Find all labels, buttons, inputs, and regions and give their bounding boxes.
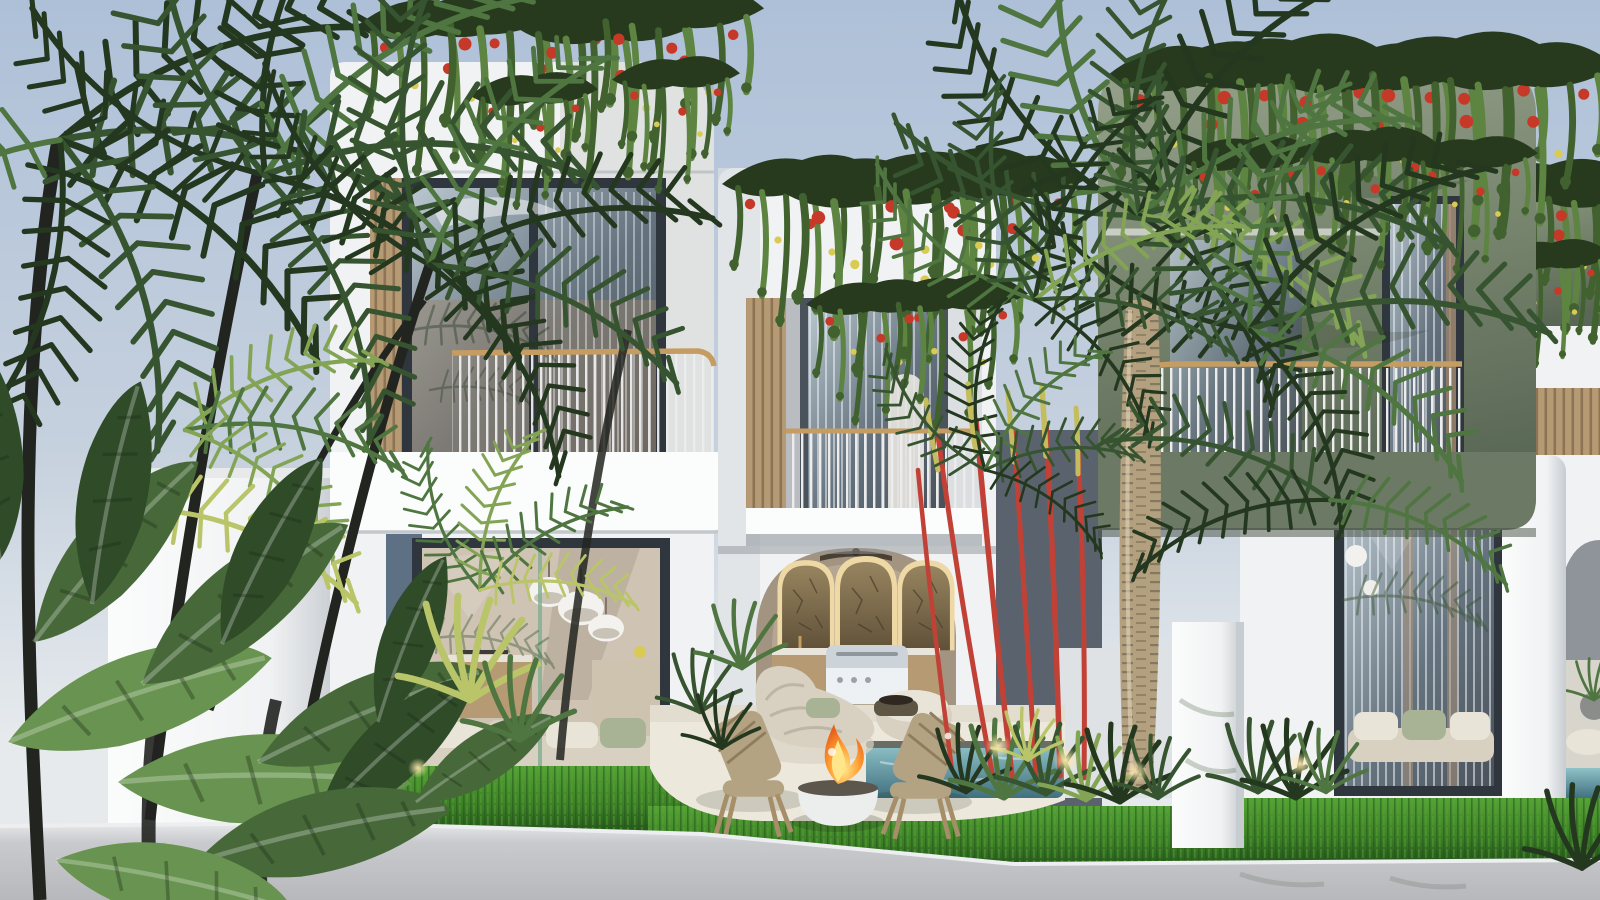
stone-niche (897, 560, 954, 650)
stone-niche (835, 556, 897, 654)
architectural-render (0, 0, 1600, 900)
stone-niche (777, 560, 834, 650)
coffee-table (874, 695, 918, 716)
villa-right-sofa (1348, 710, 1494, 762)
